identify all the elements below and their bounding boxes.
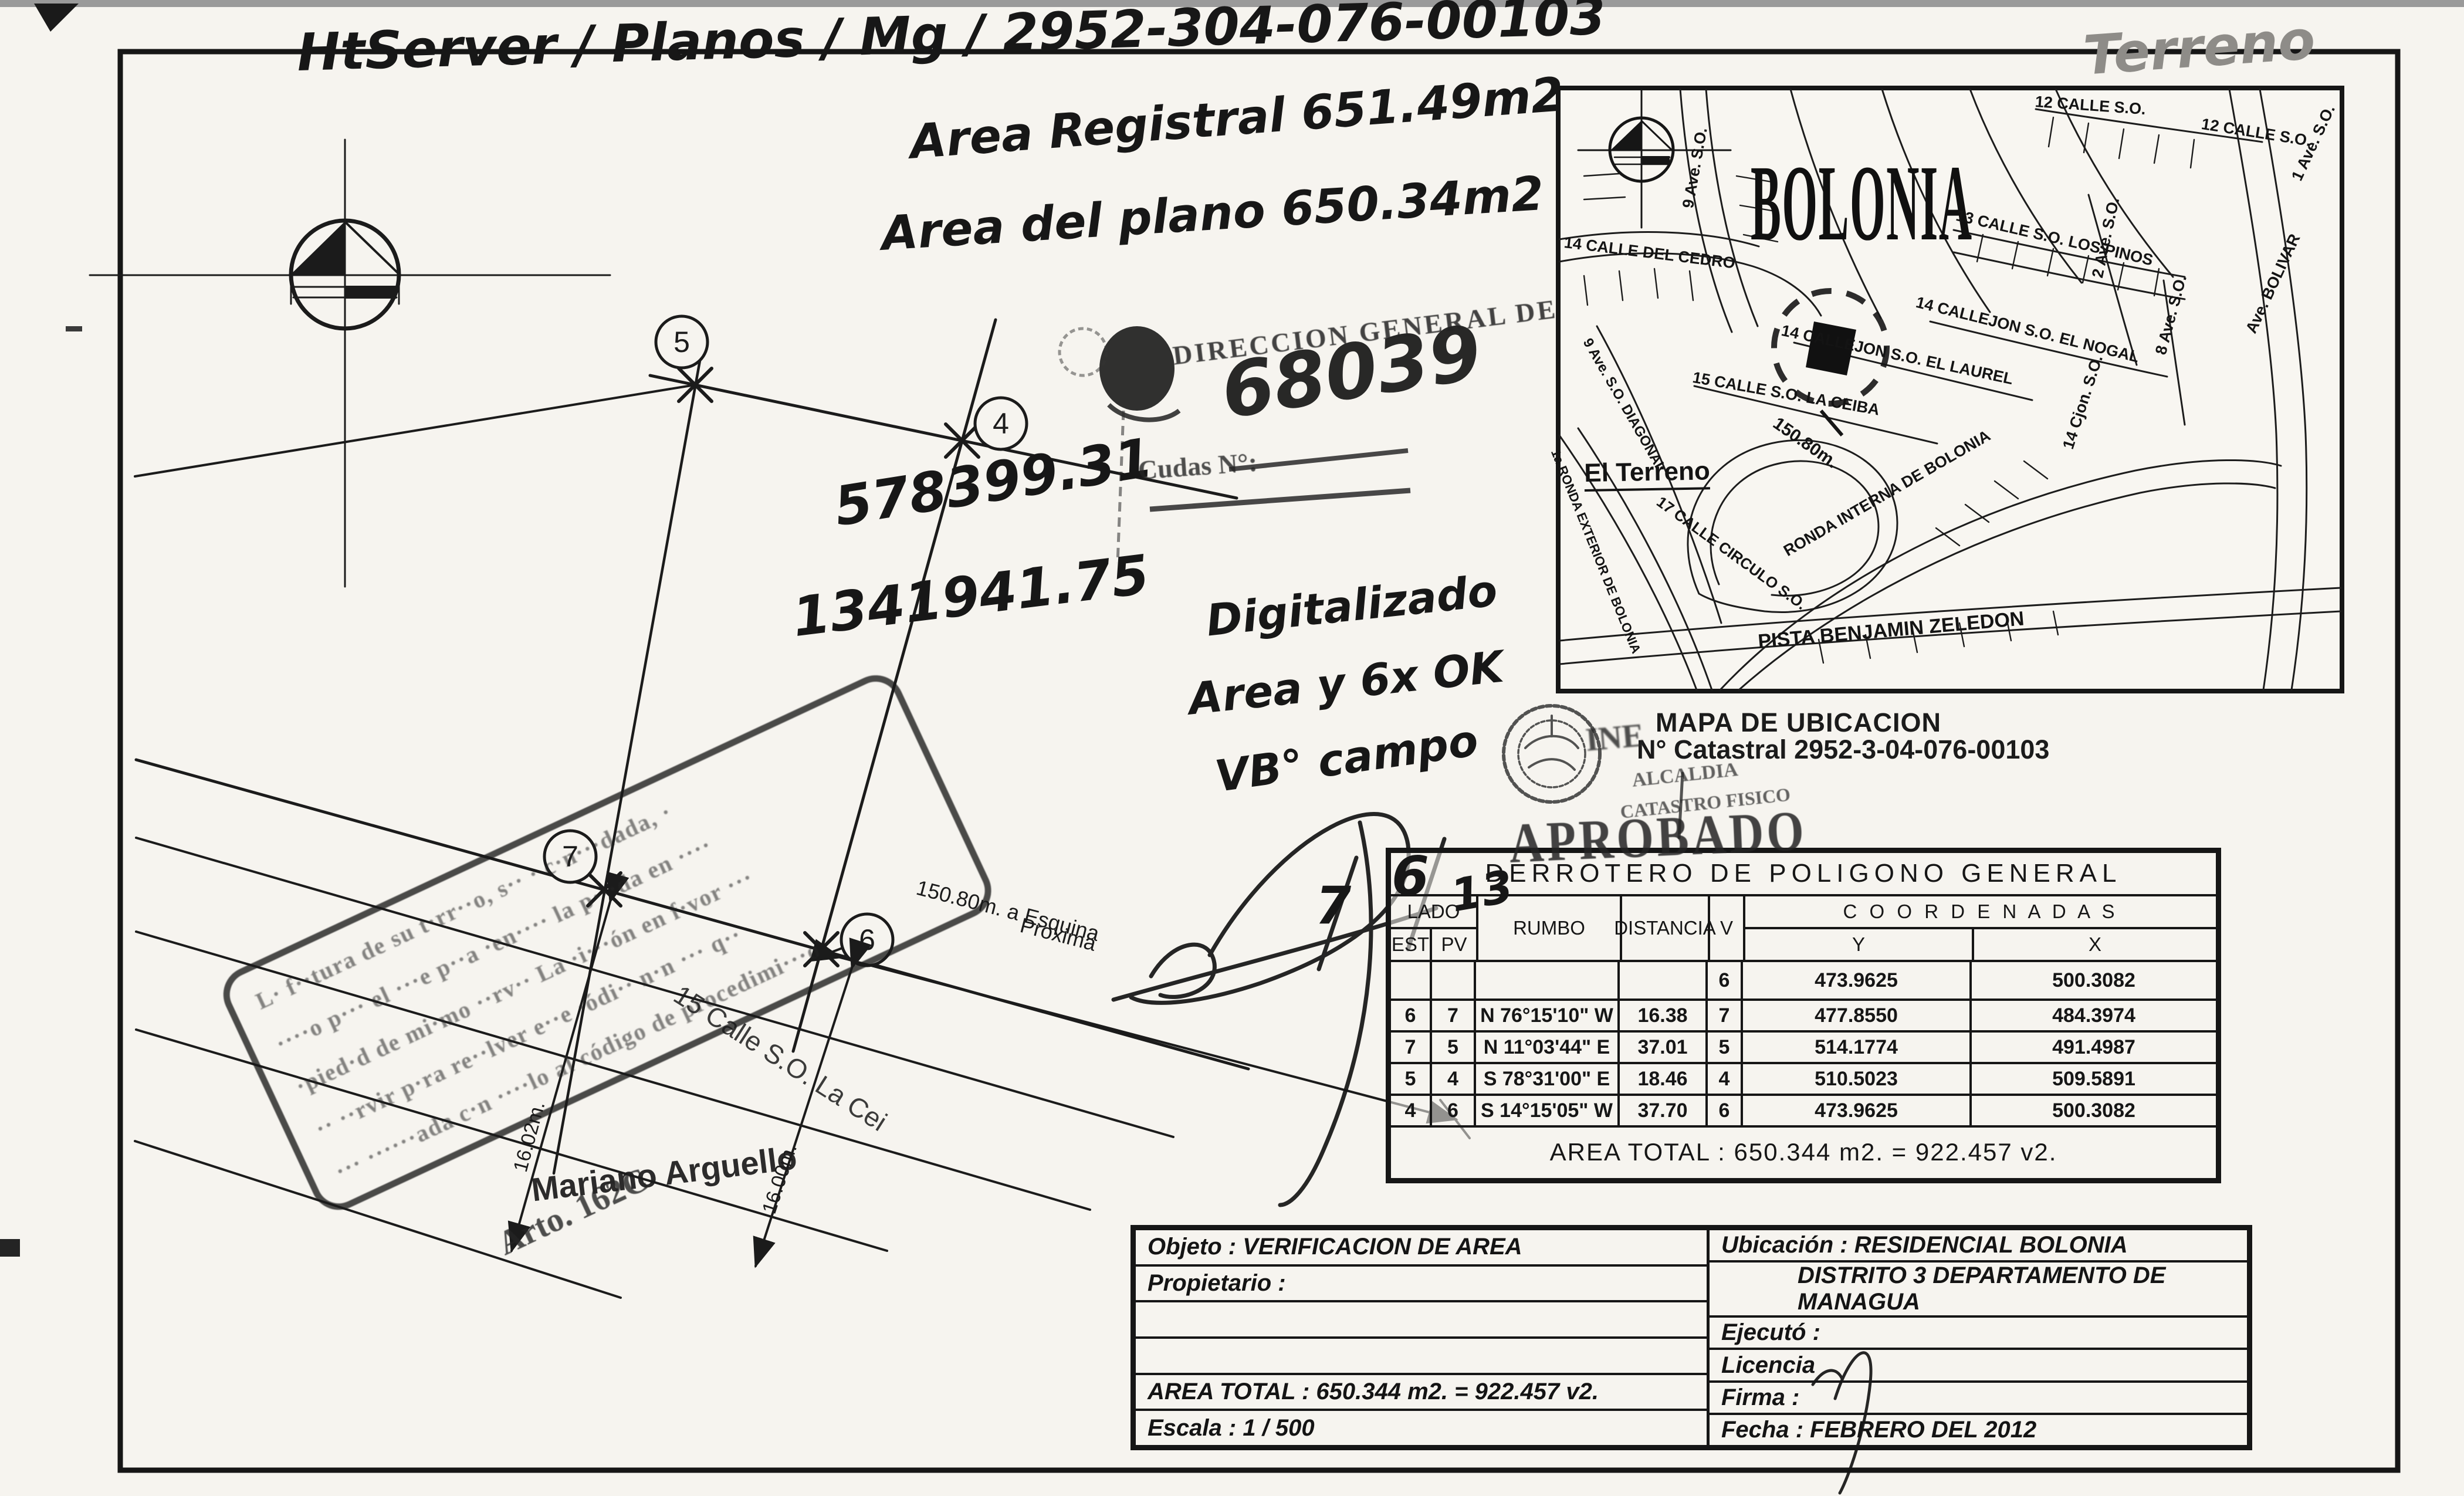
cell-y: 510.5023 <box>1743 1064 1972 1094</box>
fecha-row: Fecha : FEBRERO DEL 2012 <box>1710 1415 2247 1445</box>
cell-pv: 5 <box>1432 1033 1476 1062</box>
north-arrow-icon <box>90 140 610 587</box>
cell-est: 4 <box>1391 1096 1432 1125</box>
vertex-label-4: 4 <box>975 398 1027 449</box>
cell-dist: 18.46 <box>1620 1064 1708 1094</box>
cell-x: 484.3974 <box>1972 1001 2216 1030</box>
cell-y: 477.8550 <box>1743 1001 1972 1030</box>
table-row: 6 473.9625 500.3082 <box>1391 962 2216 1001</box>
cell-est <box>1391 962 1432 999</box>
map-el-terreno-label: El Terreno <box>1584 456 1710 492</box>
cell-x: 500.3082 <box>1972 962 2216 999</box>
firma-row: Firma : <box>1710 1383 2247 1415</box>
cell-rumbo: N 11°03'44" E <box>1476 1033 1620 1062</box>
cell-rumbo <box>1476 962 1620 999</box>
cell-rumbo: N 76°15'10" W <box>1476 1001 1620 1030</box>
cell-pv <box>1432 962 1476 999</box>
cell-y: 514.1774 <box>1743 1033 1972 1062</box>
cell-pv: 7 <box>1432 1001 1476 1030</box>
header-coordenadas: C O O R D E N A D A S <box>1745 896 2216 929</box>
cell-rumbo: S 14°15'05" W <box>1476 1096 1620 1125</box>
cell-x: 491.4987 <box>1972 1033 2216 1062</box>
licencia-row: Licencia <box>1710 1350 2247 1382</box>
derrotero-area-total: AREA TOTAL : 650.344 m2. = 922.457 v2. <box>1391 1128 2216 1177</box>
header-y: Y <box>1745 929 1974 960</box>
cell-x: 509.5891 <box>1972 1064 2216 1094</box>
ine-stamp: INE <box>1584 716 1646 759</box>
cell-v: 4 <box>1708 1064 1743 1094</box>
title-block-table: Objeto : VERIFICACION DE AREA Propietari… <box>1131 1225 2252 1450</box>
cell-y: 473.9625 <box>1743 962 1972 999</box>
header-distancia: DISTANCIA <box>1622 896 1710 960</box>
map-caption: MAPA DE UBICACION <box>1656 708 1941 738</box>
scan-edge-mark-2 <box>0 1239 20 1257</box>
cell-v: 6 <box>1708 962 1743 999</box>
hand-date-13: 13 <box>1447 860 1517 922</box>
cell-rumbo: S 78°31'00" E <box>1476 1064 1620 1094</box>
cell-v: 6 <box>1708 1096 1743 1125</box>
cell-y: 473.9625 <box>1743 1096 1972 1125</box>
ubicacion-row: Ubicación : RESIDENCIAL BOLONIA <box>1710 1230 2247 1263</box>
propietario-row: Propietario : <box>1136 1267 1707 1303</box>
cell-pv: 4 <box>1432 1064 1476 1094</box>
cell-v: 5 <box>1708 1033 1743 1062</box>
table-row: 4 6 S 14°15'05" W 37.70 6 473.9625 500.3… <box>1391 1096 2216 1128</box>
cell-dist: 37.01 <box>1620 1033 1708 1062</box>
scan-corner-mark <box>34 4 79 32</box>
hand-date-7: 7 <box>1315 875 1351 936</box>
header-v: V <box>1710 896 1745 960</box>
header-x: X <box>1974 929 2216 960</box>
cell-est: 5 <box>1391 1064 1432 1094</box>
cell-est: 6 <box>1391 1001 1432 1030</box>
objeto-row: Objeto : VERIFICACION DE AREA <box>1136 1230 1707 1267</box>
header-est: EST <box>1391 929 1432 960</box>
cell-dist: 16.38 <box>1620 1001 1708 1030</box>
aprobado-stamp: APROBADO <box>1508 798 1808 876</box>
blank-row <box>1136 1302 1707 1339</box>
cell-est: 7 <box>1391 1033 1432 1062</box>
title-block-left-column: Objeto : VERIFICACION DE AREA Propietari… <box>1136 1230 1710 1445</box>
vertex-label-5: 5 <box>656 316 708 368</box>
scanned-survey-plan-page: HtServer / Planos / Mg / 2952-304-076-00… <box>0 0 2464 1496</box>
cell-v: 7 <box>1708 1001 1743 1030</box>
cell-dist <box>1620 962 1708 999</box>
table-row: 5 4 S 78°31'00" E 18.46 4 510.5023 509.5… <box>1391 1064 2216 1096</box>
hand-date-6: 6 <box>1392 845 1429 908</box>
map-catastral-number: N° Catastral 2952-3-04-076-00103 <box>1637 735 2049 765</box>
header-pv: PV <box>1432 929 1476 960</box>
distrito-row: DISTRITO 3 DEPARTAMENTO DE MANAGUA <box>1710 1263 2247 1318</box>
title-block-right-column: Ubicación : RESIDENCIAL BOLONIA DISTRITO… <box>1710 1230 2247 1445</box>
table-row: 7 5 N 11°03'44" E 37.01 5 514.1774 491.4… <box>1391 1033 2216 1064</box>
map-district-title: BOLONIA <box>1751 141 1973 266</box>
escala-row: Escala : 1 / 500 <box>1136 1411 1707 1445</box>
ejecuto-row: Ejecutó : <box>1710 1318 2247 1350</box>
table-row: 6 7 N 76°15'10" W 16.38 7 477.8550 484.3… <box>1391 1001 2216 1033</box>
blank-row <box>1136 1339 1707 1375</box>
area-total-row: AREA TOTAL : 650.344 m2. = 922.457 v2. <box>1136 1375 1707 1412</box>
cell-dist: 37.70 <box>1620 1096 1708 1125</box>
cell-pv: 6 <box>1432 1096 1476 1125</box>
cell-x: 500.3082 <box>1972 1096 2216 1125</box>
scan-edge-mark <box>66 326 82 331</box>
